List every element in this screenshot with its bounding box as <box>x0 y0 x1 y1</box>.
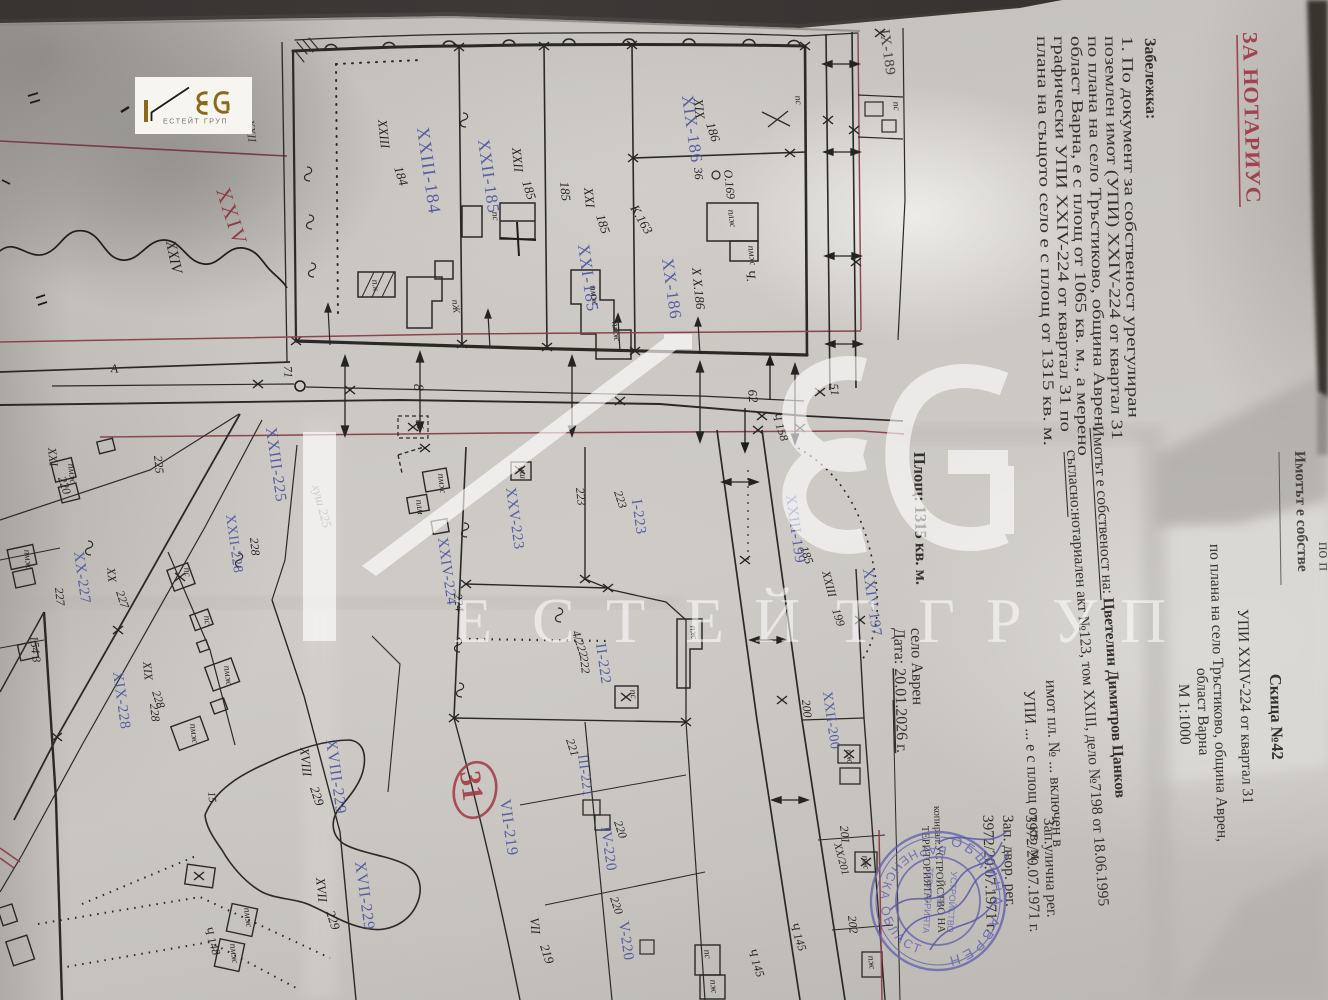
svg-text:Т: Т <box>836 585 875 656</box>
svg-text:пс: пс <box>701 949 712 960</box>
svg-text:185: 185 <box>519 178 539 202</box>
svg-text:пж: пж <box>865 955 877 970</box>
svg-text:пмж: пмж <box>227 943 239 964</box>
svg-text:201: 201 <box>837 825 853 844</box>
svg-text:XXV-223: XXV-223 <box>502 486 527 550</box>
svg-text:плм: плм <box>413 499 425 515</box>
svg-text:186: 186 <box>703 120 723 144</box>
svg-text:Имотът е собстве: Имотът е собстве <box>1291 451 1311 572</box>
svg-text:У: У <box>1052 585 1098 656</box>
svg-text:Ч.: Ч. <box>743 269 759 283</box>
svg-text:223: 223 <box>611 489 630 510</box>
svg-text:227: 227 <box>113 589 132 611</box>
svg-text:М 1:1000: М 1:1000 <box>1175 684 1194 745</box>
svg-text:185: 185 <box>557 181 574 202</box>
svg-text:223: 223 <box>573 487 589 506</box>
svg-text:XXIII-184: XXIII-184 <box>413 126 445 216</box>
svg-text:IX-189: IX-189 <box>876 28 898 76</box>
svg-text:184: 184 <box>391 164 411 188</box>
svg-text:51: 51 <box>827 383 842 396</box>
svg-text:по п: по п <box>1315 542 1328 572</box>
svg-text:Зап.улична рег.: Зап.улична рег. <box>1040 818 1060 918</box>
svg-text:XX-186: XX-186 <box>658 257 685 321</box>
svg-text:228: 228 <box>247 537 263 556</box>
svg-text:202: 202 <box>845 915 861 934</box>
svg-text:154 3: 154 3 <box>27 635 44 663</box>
svg-text:XXIII: XXIII <box>375 118 393 150</box>
svg-text:XXIV: XXIV <box>162 239 185 277</box>
svg-text:Т: Т <box>606 585 645 656</box>
svg-text:Р: Р <box>986 585 1022 656</box>
svg-text:V-220: V-220 <box>615 920 636 961</box>
svg-text:VII-219: VII-219 <box>496 798 521 857</box>
svg-text:О.169: О.169 <box>721 169 738 200</box>
svg-text:Ч 148: Ч 148 <box>201 925 223 957</box>
svg-text:200: 200 <box>799 699 815 718</box>
svg-text:XX/201: XX/201 <box>831 841 851 877</box>
svg-text:XIX: XIX <box>691 97 708 121</box>
svg-text:XVIII: XVIII <box>297 746 315 778</box>
svg-text:п.к: п.к <box>369 279 380 292</box>
svg-text:пмж: пмж <box>435 473 447 494</box>
svg-text:XXI: XXI <box>581 186 598 209</box>
svg-text:XIX-228: XIX-228 <box>109 670 133 730</box>
svg-text:пс: пс <box>181 567 192 578</box>
svg-text:К.163: К.163 <box>627 201 656 237</box>
svg-text:плж: плж <box>725 209 737 228</box>
svg-text:П: П <box>1120 585 1166 656</box>
svg-text:Ч 145: Ч 145 <box>745 947 767 979</box>
svg-text:225: 225 <box>151 455 167 474</box>
svg-text:Е: Е <box>453 585 492 656</box>
svg-text:пж: пж <box>859 855 871 870</box>
svg-text:XVII: XVII <box>313 876 331 904</box>
svg-text:ЕСТЕЙТ ГРУП: ЕСТЕЙТ ГРУП <box>163 117 228 126</box>
svg-text:X X.186: X X.186 <box>689 266 708 311</box>
svg-text:3972/20.07.1971 г.: 3972/20.07.1971 г. <box>1022 815 1043 933</box>
svg-text:XXIV: XXIV <box>211 184 253 249</box>
svg-text:219: 219 <box>537 942 557 966</box>
svg-text:Забележка:: Забележка: <box>1141 38 1159 120</box>
svg-text:XXII-185: XXII-185 <box>474 138 503 215</box>
svg-text:пмж: пмж <box>241 907 253 928</box>
svg-text:пмж: пмж <box>221 665 233 686</box>
svg-text:XX-227: XX-227 <box>70 550 93 604</box>
svg-text:XXII: XXII <box>509 146 527 174</box>
svg-text:227: 227 <box>52 587 68 607</box>
svg-text:I-223: I-223 <box>628 498 649 535</box>
svg-text:Е: Е <box>685 585 724 656</box>
svg-text:пс: пс <box>627 689 638 700</box>
svg-text:пж: пж <box>843 749 855 764</box>
svg-text:XVII-229: XVII-229 <box>351 860 378 931</box>
svg-text:Скица №42: Скица №42 <box>1266 674 1287 760</box>
svg-text:220: 220 <box>607 895 626 916</box>
svg-text:област Варна: област Варна <box>1193 668 1212 756</box>
svg-text:185: 185 <box>593 212 613 236</box>
svg-text:XXIII-225: XXIII-225 <box>262 426 289 503</box>
svg-text:VII: VII <box>527 917 544 936</box>
svg-text:Й: Й <box>754 585 800 656</box>
svg-text:222: 222 <box>577 655 593 674</box>
svg-text:пс: пс <box>890 101 901 112</box>
svg-text:III-221: III-221 <box>574 753 595 797</box>
svg-text:пс: пс <box>792 95 803 106</box>
svg-text:пс: пс <box>489 211 500 222</box>
svg-text:XXII-200: XXII-200 <box>819 690 842 750</box>
svg-text:пмж: пмж <box>187 723 199 744</box>
svg-text:XX: XX <box>104 566 120 584</box>
svg-text:XIX: XIX <box>140 660 156 682</box>
svg-text:31: 31 <box>453 769 489 803</box>
svg-text:8: 8 <box>410 384 425 392</box>
svg-text:Дата: 20.01.2026 г.: Дата: 20.01.2026 г. <box>890 628 910 754</box>
svg-text:XXII-228: XXII-228 <box>222 513 245 574</box>
svg-text:15: 15 <box>205 791 218 804</box>
svg-text:пмж: пмж <box>609 321 621 342</box>
svg-text:пЖ: пЖ <box>449 299 461 315</box>
svg-text:XXI: XXI <box>45 446 61 468</box>
svg-text:71: 71 <box>281 366 295 378</box>
svg-text:пж: пж <box>707 979 719 994</box>
svg-text:Г: Г <box>918 585 955 656</box>
svg-text:228: 228 <box>147 703 163 722</box>
svg-text:пмж: пмж <box>745 245 757 266</box>
svg-text:С: С <box>532 585 575 656</box>
svg-text:36: 36 <box>691 166 706 180</box>
svg-text:А: А <box>110 361 120 376</box>
svg-text:62: 62 <box>745 389 761 404</box>
svg-text:ЗА НОТАРИУС: ЗА НОТАРИУС <box>1238 32 1266 204</box>
